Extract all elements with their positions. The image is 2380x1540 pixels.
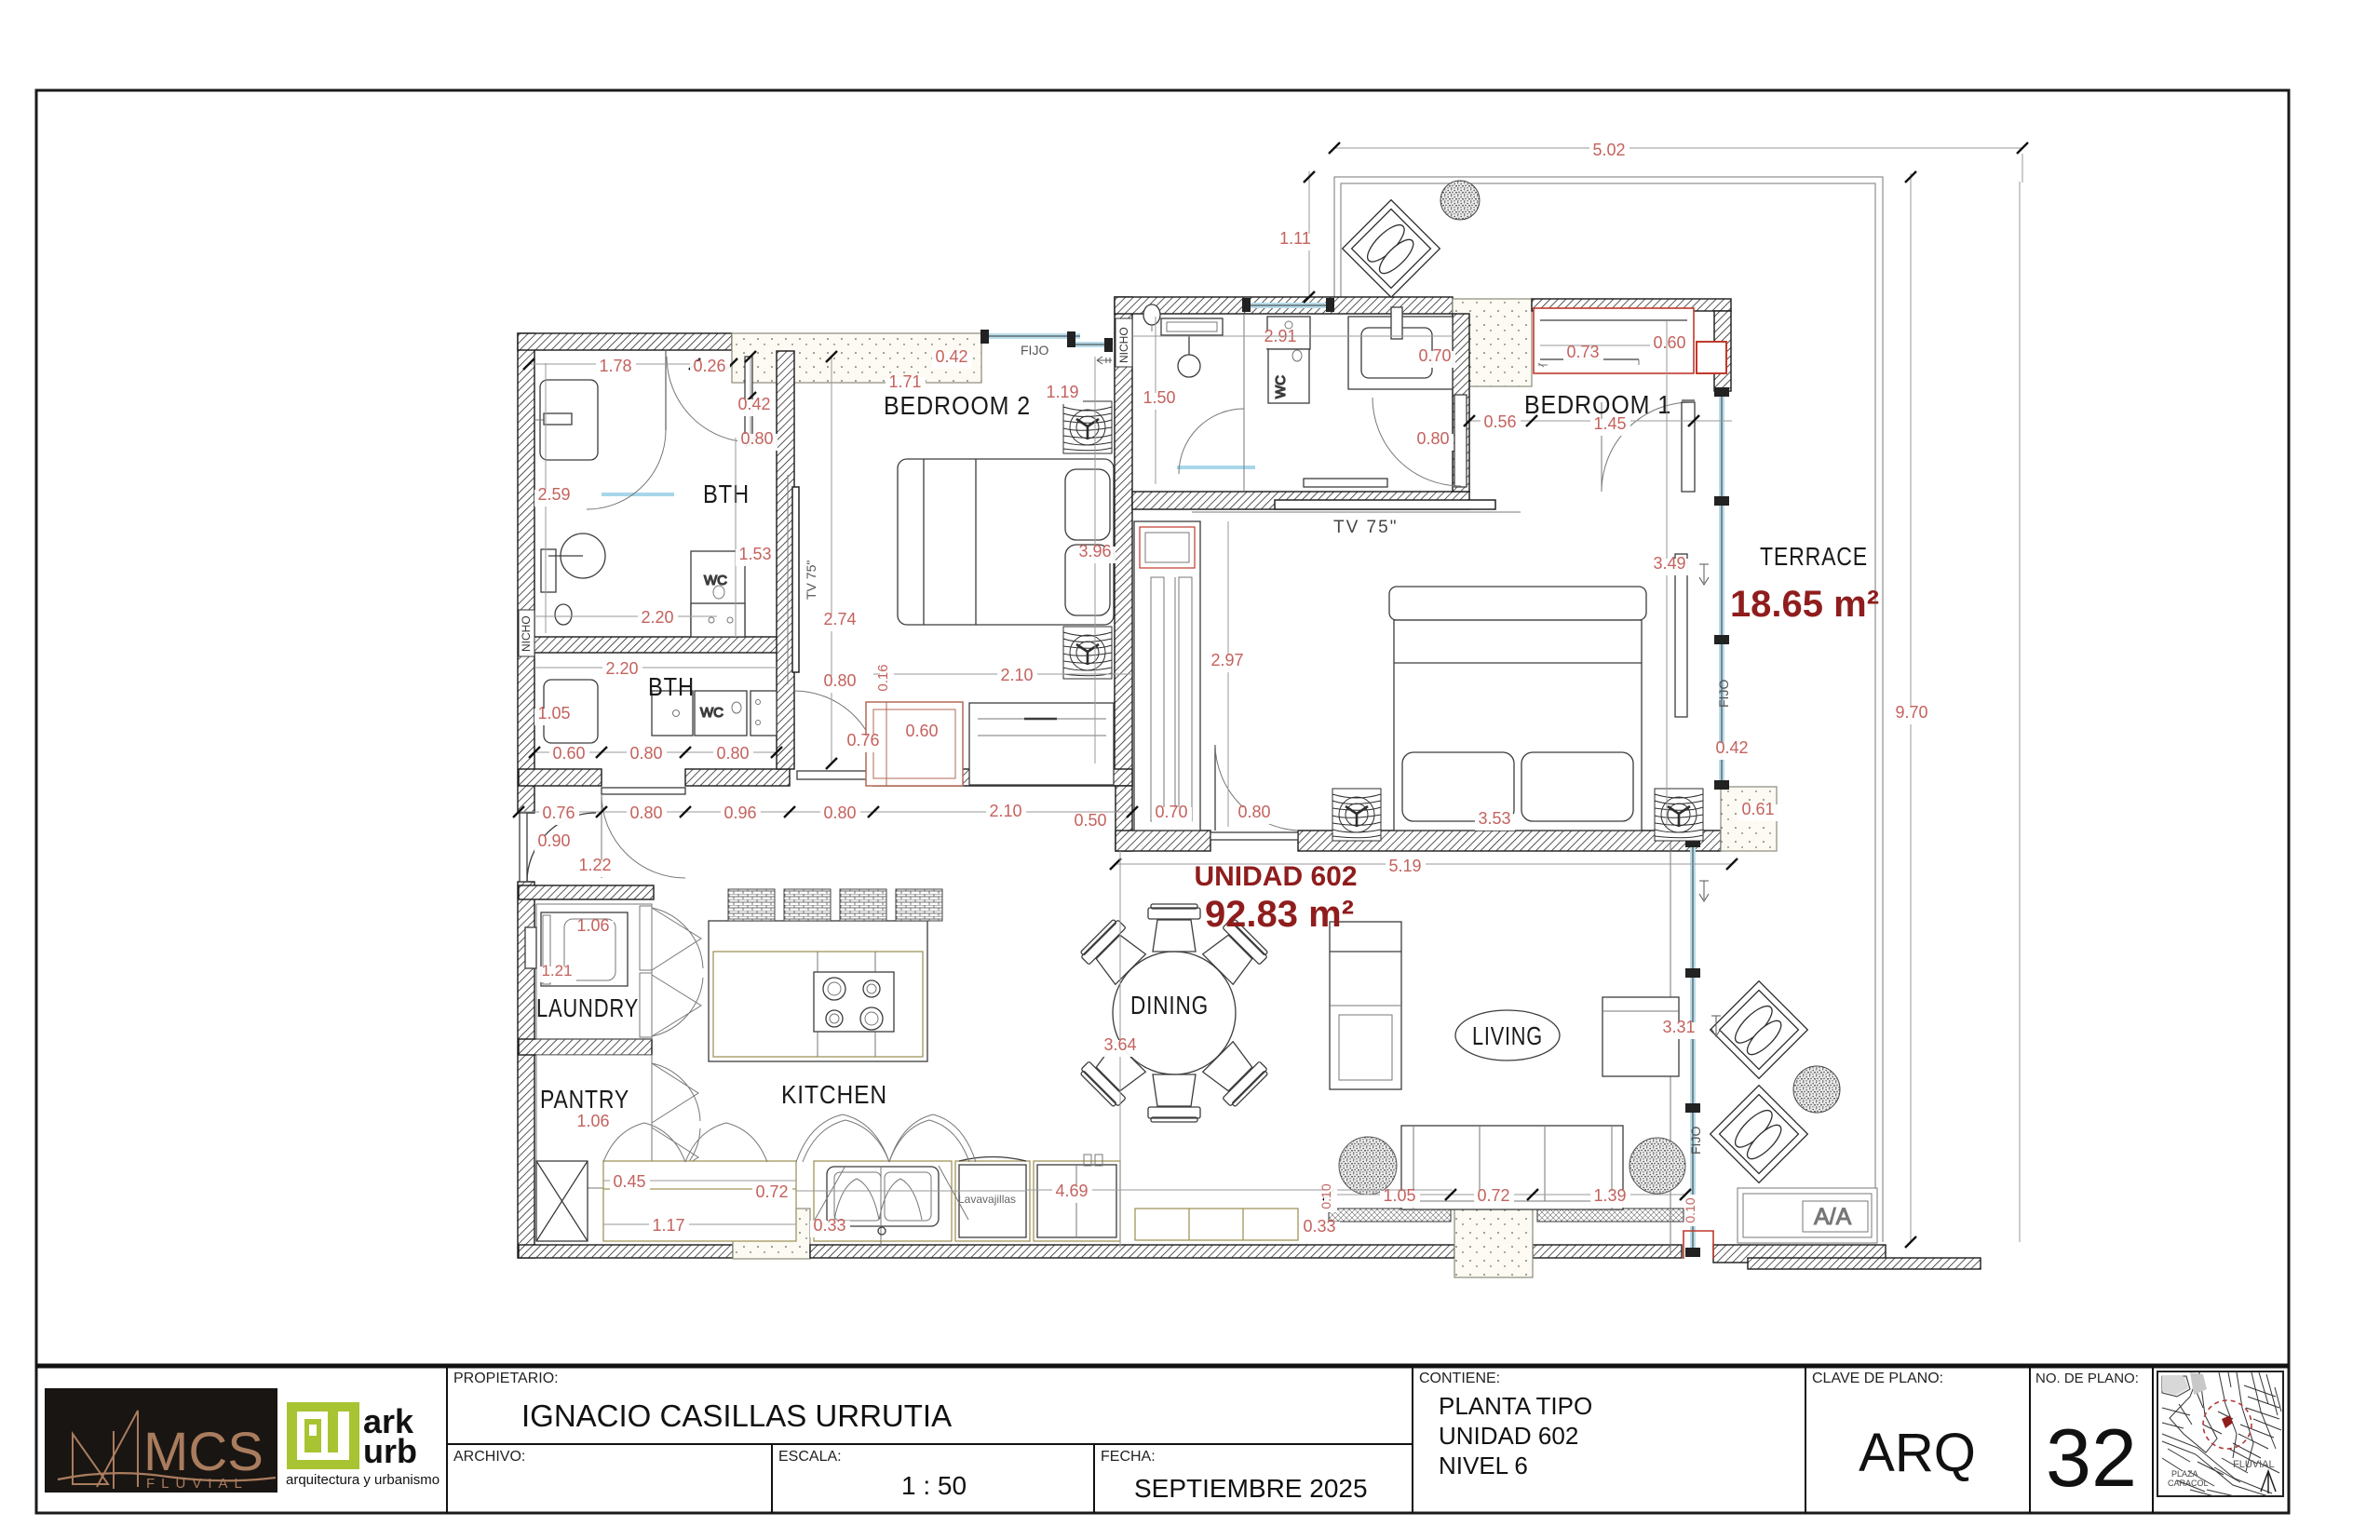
svg-text:UNIDAD 602: UNIDAD 602 bbox=[1194, 861, 1357, 892]
svg-text:2.74: 2.74 bbox=[823, 610, 856, 628]
svg-text:0.90: 0.90 bbox=[537, 831, 570, 850]
svg-text:1.78: 1.78 bbox=[599, 357, 631, 375]
svg-text:0.10: 0.10 bbox=[1318, 1183, 1333, 1209]
svg-text:NIVEL 6: NIVEL 6 bbox=[1439, 1452, 1528, 1479]
svg-text:3.53: 3.53 bbox=[1478, 809, 1510, 828]
svg-text:FLUVIAL: FLUVIAL bbox=[146, 1476, 249, 1492]
svg-text:1.19: 1.19 bbox=[1046, 383, 1078, 401]
svg-text:SEPTIEMBRE 2025: SEPTIEMBRE 2025 bbox=[1134, 1474, 1368, 1503]
svg-text:FLUVIAL: FLUVIAL bbox=[2233, 1459, 2275, 1470]
svg-text:MCS: MCS bbox=[143, 1422, 264, 1482]
svg-text:4.69: 4.69 bbox=[1055, 1182, 1088, 1200]
svg-text:0.70: 0.70 bbox=[1418, 346, 1451, 365]
svg-text:0.60: 0.60 bbox=[1653, 333, 1685, 352]
svg-text:arquitectura y urbanismo: arquitectura y urbanismo bbox=[286, 1472, 439, 1488]
svg-text:92.83 m²: 92.83 m² bbox=[1205, 894, 1354, 935]
svg-text:0.80: 0.80 bbox=[629, 744, 662, 763]
svg-text:5.19: 5.19 bbox=[1388, 857, 1421, 875]
svg-text:WC: WC bbox=[704, 573, 727, 588]
svg-text:32: 32 bbox=[2046, 1412, 2137, 1504]
svg-text:FIJO: FIJO bbox=[1021, 343, 1048, 358]
svg-text:1.45: 1.45 bbox=[1593, 414, 1626, 433]
svg-text:0.80: 0.80 bbox=[1237, 803, 1270, 821]
svg-text:ARQ: ARQ bbox=[1859, 1423, 1976, 1483]
svg-text:WC: WC bbox=[1273, 375, 1289, 399]
svg-text:0.45: 0.45 bbox=[613, 1172, 645, 1191]
svg-text:1.06: 1.06 bbox=[576, 1112, 609, 1130]
svg-text:BTH: BTH bbox=[703, 480, 750, 508]
svg-text:WC: WC bbox=[700, 705, 723, 721]
svg-text:2.10: 2.10 bbox=[1000, 666, 1033, 684]
svg-text:LAUNDRY: LAUNDRY bbox=[536, 993, 639, 1022]
svg-text:DINING: DINING bbox=[1130, 991, 1209, 1020]
svg-text:2.20: 2.20 bbox=[605, 659, 638, 678]
svg-text:2.59: 2.59 bbox=[537, 485, 570, 504]
svg-text:urb: urb bbox=[363, 1432, 417, 1470]
svg-text:0.80: 0.80 bbox=[1416, 429, 1449, 448]
svg-text:0.80: 0.80 bbox=[740, 429, 773, 448]
svg-text:0.80: 0.80 bbox=[629, 804, 662, 822]
svg-text:5.02: 5.02 bbox=[1592, 141, 1625, 159]
svg-text:0.42: 0.42 bbox=[1715, 738, 1748, 757]
svg-text:PANTRY: PANTRY bbox=[540, 1085, 629, 1114]
svg-text:0.80: 0.80 bbox=[823, 671, 856, 690]
svg-text:1.71: 1.71 bbox=[888, 372, 921, 391]
svg-text:0.72: 0.72 bbox=[755, 1182, 788, 1201]
svg-text:0.61: 0.61 bbox=[1741, 800, 1774, 818]
svg-text:LIVING: LIVING bbox=[1472, 1021, 1543, 1050]
svg-text:A/A: A/A bbox=[1814, 1204, 1852, 1230]
svg-text:TERRACE: TERRACE bbox=[1760, 542, 1868, 571]
svg-text:0.56: 0.56 bbox=[1483, 412, 1516, 431]
svg-text:1.05: 1.05 bbox=[1383, 1186, 1415, 1205]
svg-text:0.76: 0.76 bbox=[542, 804, 575, 822]
svg-text:FIJO: FIJO bbox=[1716, 680, 1731, 708]
svg-text:2.97: 2.97 bbox=[1210, 651, 1243, 669]
svg-text:0.33: 0.33 bbox=[1303, 1217, 1335, 1236]
svg-text:BEDROOM 2: BEDROOM 2 bbox=[884, 391, 1031, 420]
svg-text:ARCHIVO:: ARCHIVO: bbox=[453, 1449, 525, 1465]
svg-text:PROPIETARIO:: PROPIETARIO: bbox=[453, 1371, 559, 1386]
svg-text:PLAZA: PLAZA bbox=[2171, 1469, 2198, 1479]
svg-text:NO. DE PLANO:: NO. DE PLANO: bbox=[2035, 1371, 2139, 1386]
svg-text:CONTIENE:: CONTIENE: bbox=[1419, 1371, 1500, 1386]
svg-text:TV 75": TV 75" bbox=[1333, 518, 1398, 537]
svg-text:PLANTA TIPO: PLANTA TIPO bbox=[1439, 1392, 1592, 1420]
svg-text:3.64: 3.64 bbox=[1103, 1035, 1136, 1054]
svg-text:0.60: 0.60 bbox=[905, 722, 938, 740]
svg-text:0.26: 0.26 bbox=[693, 357, 725, 375]
svg-text:KITCHEN: KITCHEN bbox=[781, 1080, 887, 1109]
svg-text:NICHO: NICHO bbox=[520, 615, 533, 652]
svg-text:CARACOL: CARACOL bbox=[2168, 1479, 2209, 1488]
svg-text:IGNACIO CASILLAS URRUTIA: IGNACIO CASILLAS URRUTIA bbox=[521, 1398, 952, 1433]
svg-text:0.10: 0.10 bbox=[1683, 1197, 1697, 1223]
svg-text:1.50: 1.50 bbox=[1143, 388, 1175, 407]
svg-text:0.96: 0.96 bbox=[723, 804, 756, 822]
svg-text:0.50: 0.50 bbox=[1074, 811, 1106, 830]
svg-text:Lavavajillas: Lavavajillas bbox=[958, 1193, 1016, 1206]
svg-text:3.49: 3.49 bbox=[1653, 554, 1685, 573]
svg-text:0.80: 0.80 bbox=[716, 744, 749, 763]
svg-text:3.96: 3.96 bbox=[1078, 542, 1111, 561]
svg-text:1 : 50: 1 : 50 bbox=[901, 1471, 967, 1500]
svg-text:0.72: 0.72 bbox=[1477, 1186, 1509, 1205]
svg-text:CLAVE DE PLANO:: CLAVE DE PLANO: bbox=[1812, 1371, 1943, 1386]
svg-text:TV 75": TV 75" bbox=[804, 561, 818, 600]
svg-text:UNIDAD 602: UNIDAD 602 bbox=[1439, 1422, 1578, 1450]
svg-text:0.16: 0.16 bbox=[875, 664, 891, 691]
svg-text:FECHA:: FECHA: bbox=[1101, 1449, 1156, 1465]
svg-text:ESCALA:: ESCALA: bbox=[778, 1449, 842, 1465]
svg-text:1.05: 1.05 bbox=[537, 704, 570, 723]
svg-text:1.21: 1.21 bbox=[541, 962, 572, 979]
svg-text:1.06: 1.06 bbox=[576, 916, 609, 935]
svg-text:2.10: 2.10 bbox=[989, 802, 1021, 820]
svg-text:1.39: 1.39 bbox=[1593, 1186, 1626, 1205]
svg-text:2.20: 2.20 bbox=[641, 608, 673, 627]
svg-text:NICHO: NICHO bbox=[1117, 327, 1130, 363]
svg-text:0.70: 0.70 bbox=[1155, 803, 1187, 821]
svg-text:0.76: 0.76 bbox=[846, 731, 879, 750]
svg-text:0.42: 0.42 bbox=[935, 347, 967, 366]
svg-text:1.22: 1.22 bbox=[578, 856, 611, 874]
svg-text:BTH: BTH bbox=[648, 672, 695, 701]
svg-text:3.31: 3.31 bbox=[1662, 1018, 1695, 1036]
svg-text:0.73: 0.73 bbox=[1566, 343, 1599, 361]
svg-text:1.17: 1.17 bbox=[652, 1216, 684, 1235]
svg-text:1.53: 1.53 bbox=[738, 545, 771, 563]
svg-text:0.33: 0.33 bbox=[813, 1216, 845, 1235]
svg-text:0.42: 0.42 bbox=[737, 395, 770, 413]
svg-text:18.65 m²: 18.65 m² bbox=[1730, 584, 1879, 625]
svg-text:0.80: 0.80 bbox=[823, 804, 856, 822]
svg-text:0.60: 0.60 bbox=[552, 744, 585, 763]
svg-text:FIJO: FIJO bbox=[1688, 1127, 1703, 1155]
svg-text:9.70: 9.70 bbox=[1895, 703, 1927, 722]
svg-text:1.11: 1.11 bbox=[1279, 229, 1311, 248]
